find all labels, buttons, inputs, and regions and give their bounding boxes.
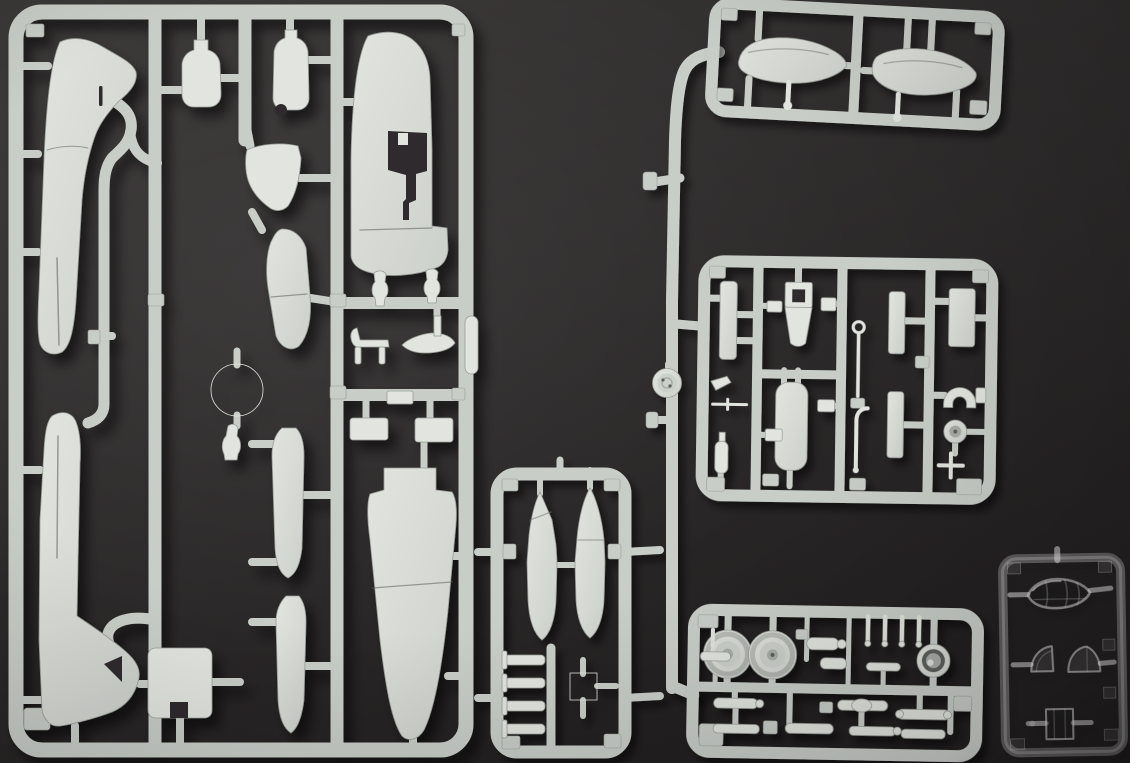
part-box-3 (821, 298, 836, 311)
pin-ball-1 (865, 641, 871, 647)
part-skid-leg-1 (355, 347, 361, 364)
part-rod-bomb-4 (505, 724, 545, 734)
part-box-2 (765, 429, 782, 441)
part-pod-half-2 (276, 596, 306, 733)
part-side-panel-2 (887, 392, 904, 458)
part-leg-2 (713, 724, 759, 734)
part-cockpit-floor (775, 382, 808, 470)
part-deep-hub-wheel (917, 644, 951, 678)
part-panel-plate-2 (350, 418, 388, 440)
part-capsule-fairing (465, 316, 478, 374)
model-kit-photo (0, 0, 1130, 763)
part-skid-leg-2 (379, 347, 385, 364)
part-leg-3 (785, 723, 833, 734)
part-leg-4-swell (852, 699, 872, 712)
part-rod-fin-2 (502, 674, 507, 692)
part-bottle (715, 441, 728, 473)
window-inner-line-1 (1054, 709, 1055, 739)
part-leg-6-knob-a (895, 710, 903, 718)
part-square-window-block (1046, 709, 1074, 739)
part-tail-wheel (944, 420, 967, 443)
part-panel-plate-1 (387, 391, 413, 404)
part-rod-bomb-3 (505, 701, 545, 711)
part-horseshoe-tab (976, 388, 986, 403)
pin-ball-2 (882, 641, 888, 647)
part-leg-6 (897, 709, 949, 720)
part-panel-plate-3 (415, 418, 453, 442)
part-box-1 (767, 301, 782, 312)
part-pod-half-1 (272, 428, 304, 578)
part-leg-1-knob (756, 700, 764, 708)
part-cylinder-1-knob (837, 640, 846, 649)
part-leg-1 (714, 698, 758, 709)
part-rod-fin-1 (502, 651, 507, 669)
sprue-d-seat-hole (792, 289, 805, 302)
part-exhaust-flask-2 (273, 30, 309, 110)
part-leg-6-knob-b (943, 711, 951, 719)
part-rod-fin-3 (502, 697, 507, 715)
part-main-wheel-right (748, 630, 797, 679)
photo-canvas (0, 0, 1130, 763)
part-side-panel-1 (888, 292, 905, 354)
part-t-brace-bar (866, 663, 900, 672)
part-rod-bomb-1 (505, 655, 545, 665)
part-bottle-neck (719, 432, 725, 441)
part-leg-7 (901, 729, 945, 739)
part-leg-5 (849, 726, 895, 736)
part-bar-left-1 (700, 652, 730, 662)
part-leg-5-knob (893, 727, 901, 735)
part-runner-disc (653, 369, 682, 398)
part-bulkhead-plate (948, 288, 975, 346)
pin-ball-4 (916, 641, 922, 647)
part-instrument-panel-strip (719, 281, 737, 359)
part-cylinder-2 (820, 658, 846, 669)
window-inner-line-2 (1065, 709, 1066, 739)
part-rod-bomb-2 (505, 678, 545, 688)
part-float-pylon (434, 316, 441, 336)
pin-ball-3 (899, 641, 905, 647)
part-cylinder-1 (807, 638, 839, 651)
part-box-4 (818, 400, 835, 412)
part-rod-fin-4 (502, 720, 507, 738)
